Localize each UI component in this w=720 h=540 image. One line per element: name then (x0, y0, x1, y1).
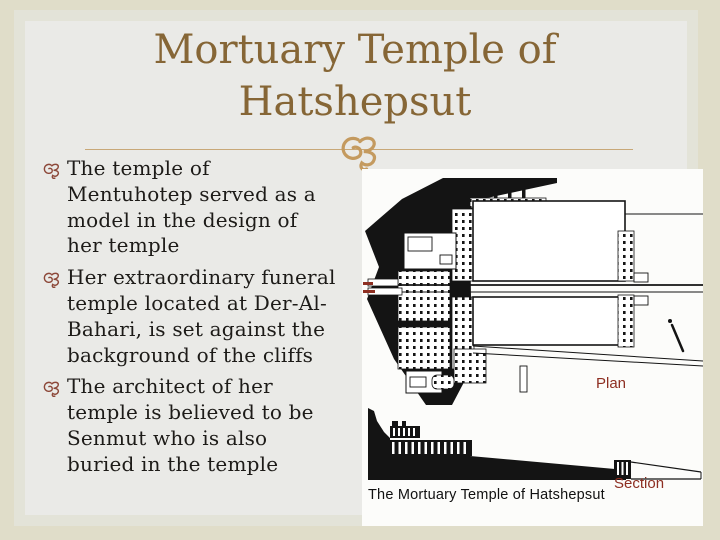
scroll-bullet-icon (38, 162, 64, 179)
bullet-text: Her extraordinary funeral temple located… (67, 265, 336, 368)
bullet-item: Her extraordinary funeral temple located… (38, 265, 356, 368)
bullet-text: The architect of her temple is believed … (67, 374, 314, 477)
figure-caption: The Mortuary Temple of Hatshepsut (368, 487, 605, 503)
plan-label: Plan (596, 375, 626, 392)
scroll-bullet-icon (38, 271, 64, 288)
bullet-text: The temple of Mentuhotep served as a mod… (67, 156, 316, 259)
temple-figure: Plan Section The Mortuary Temple of Hats… (362, 169, 703, 526)
scroll-bullet-icon (38, 380, 64, 397)
slide-title: Mortuary Temple of Hatshepsut (16, 24, 694, 128)
section-label: Section (614, 475, 664, 492)
title-divider (85, 149, 633, 150)
bullet-list: The temple of Mentuhotep served as a mod… (38, 156, 356, 484)
slide-page: Mortuary Temple of Hatshepsut The temple… (0, 0, 720, 540)
bullet-item: The architect of her temple is believed … (38, 374, 356, 477)
bullet-item: The temple of Mentuhotep served as a mod… (38, 156, 356, 259)
plan-drawing (362, 169, 703, 409)
